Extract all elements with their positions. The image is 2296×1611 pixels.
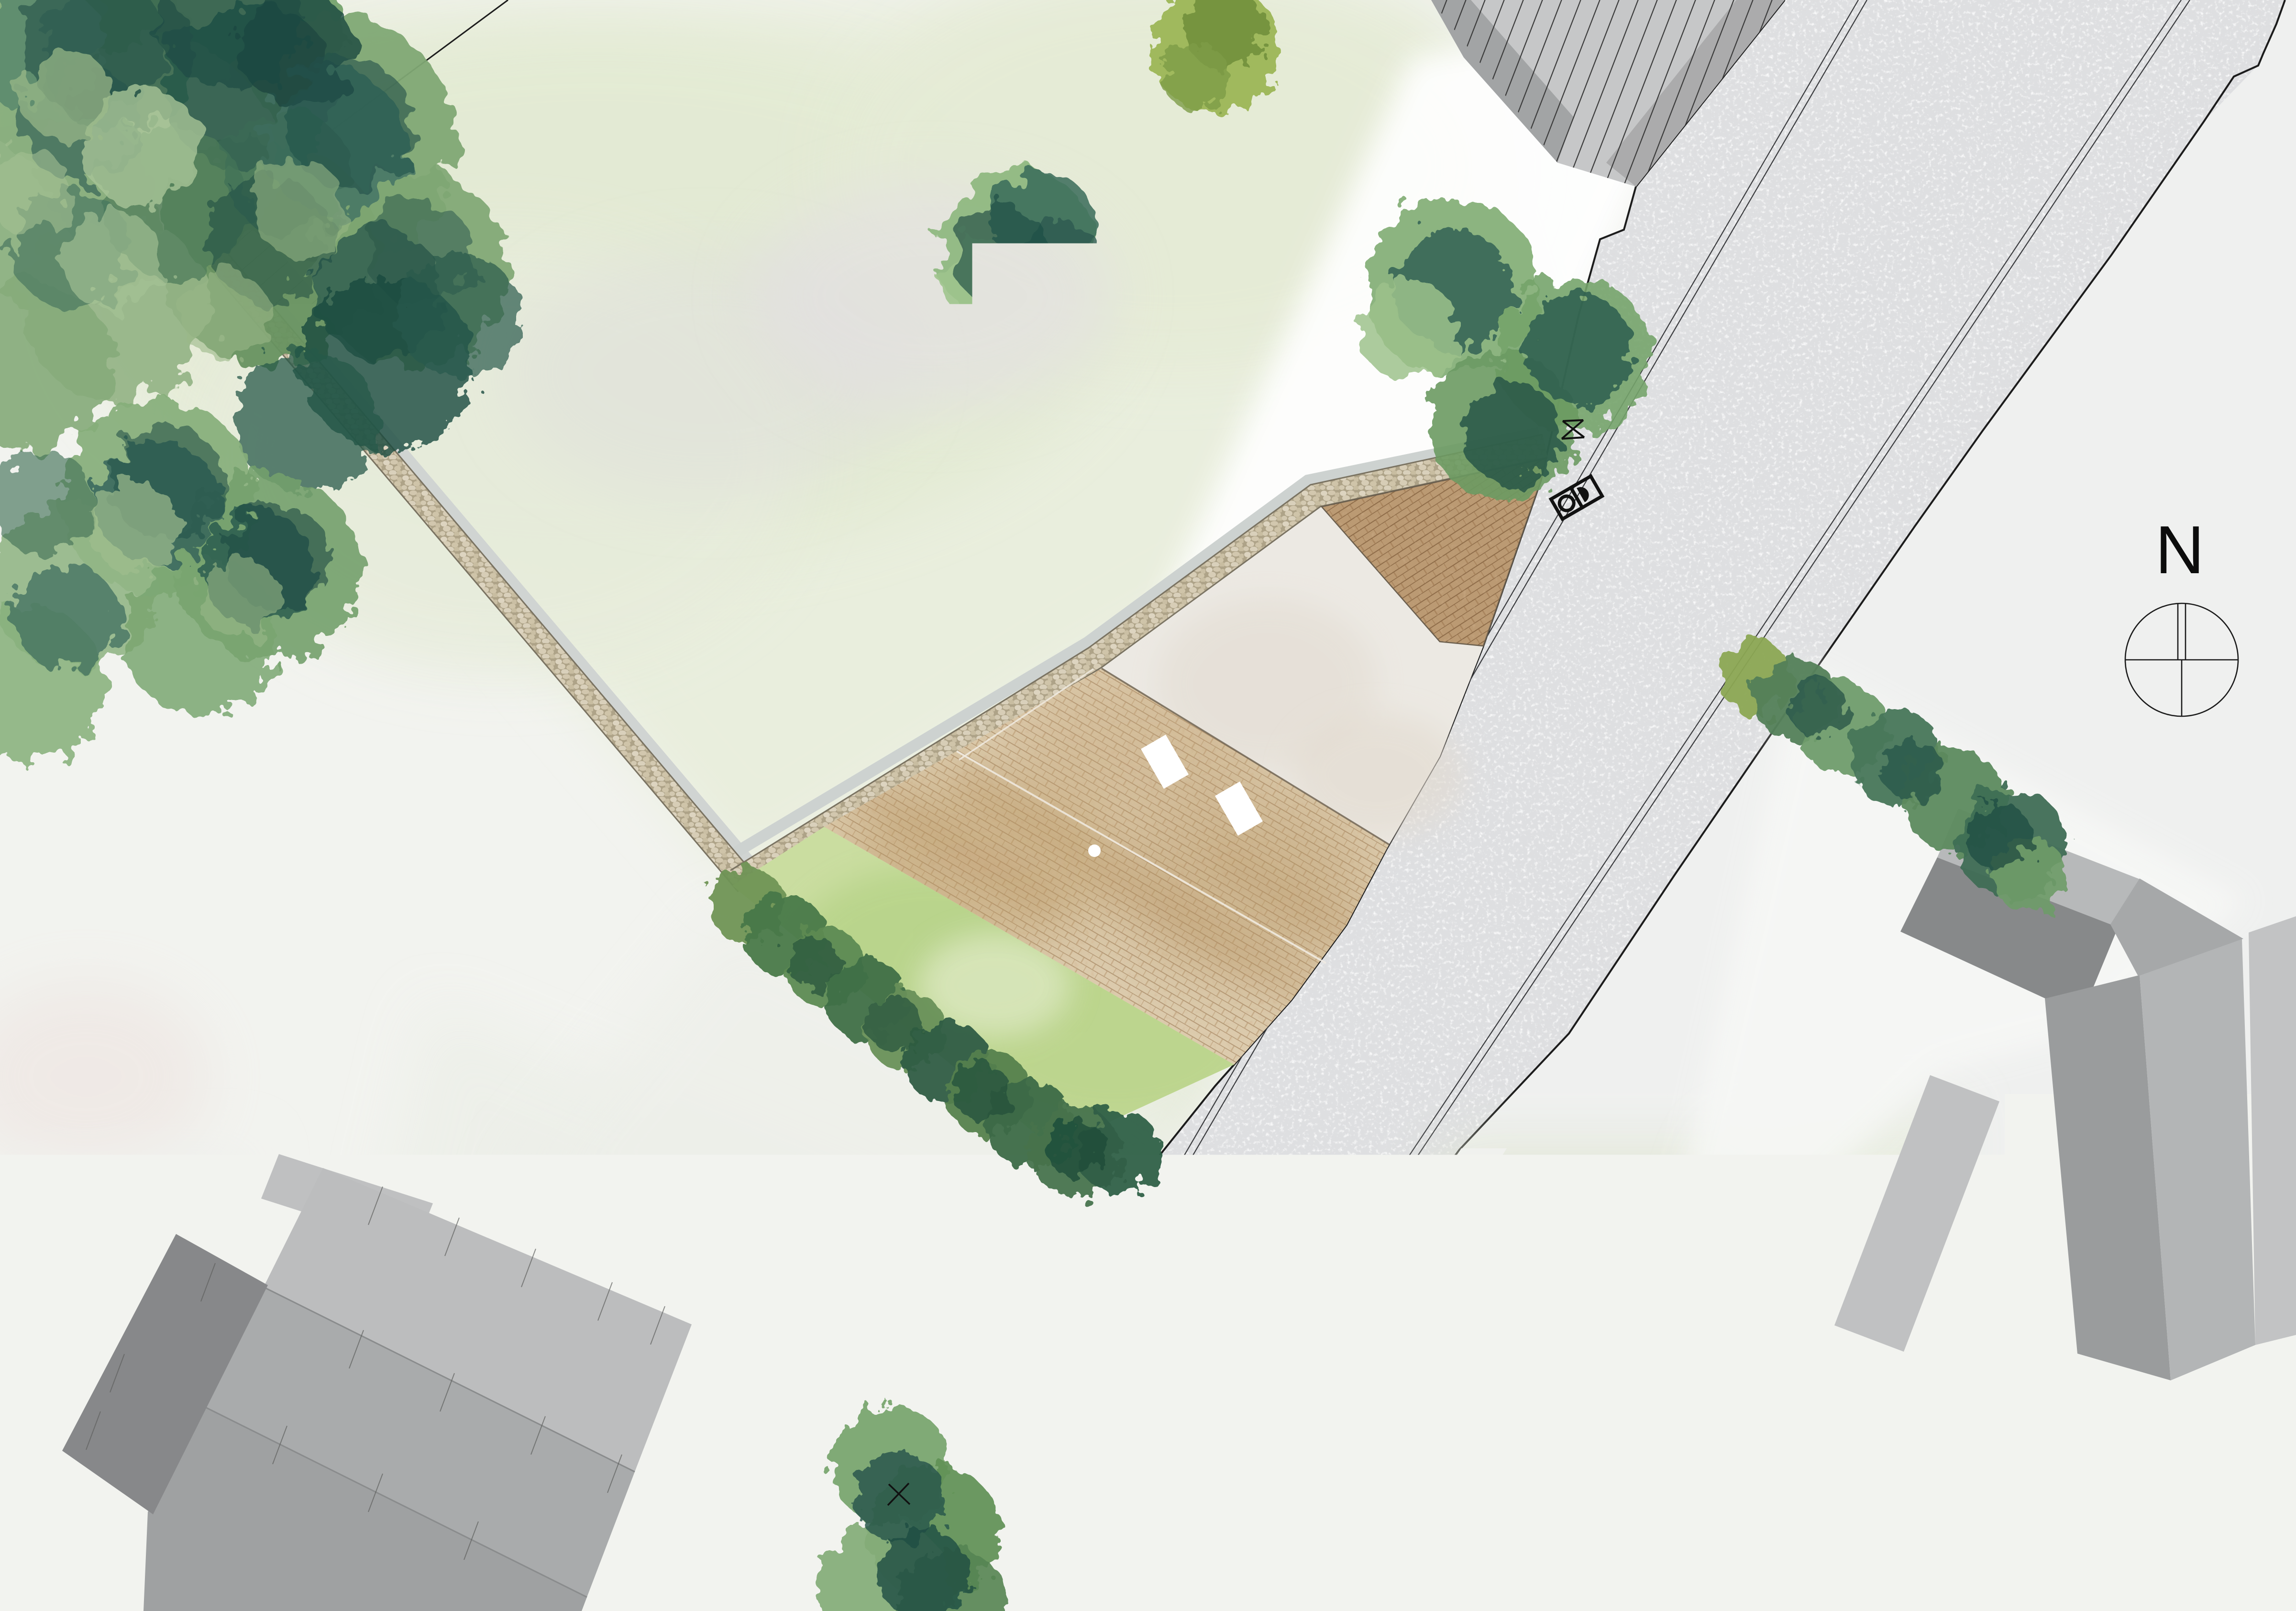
svg-text:Entrée: Entrée xyxy=(1363,631,1417,651)
svg-text:Maison: Maison xyxy=(1155,658,1214,678)
svg-text:Accès véhicules et: Accès véhicules et xyxy=(1449,737,1623,761)
svg-text:piétons: piétons xyxy=(1449,764,1517,788)
svg-text:& atelier: & atelier xyxy=(1155,681,1222,701)
svg-text:Entrée: Entrée xyxy=(1155,635,1208,655)
svg-text:N: N xyxy=(2155,512,2205,588)
svg-text:Annexe: Annexe xyxy=(1363,654,1425,674)
